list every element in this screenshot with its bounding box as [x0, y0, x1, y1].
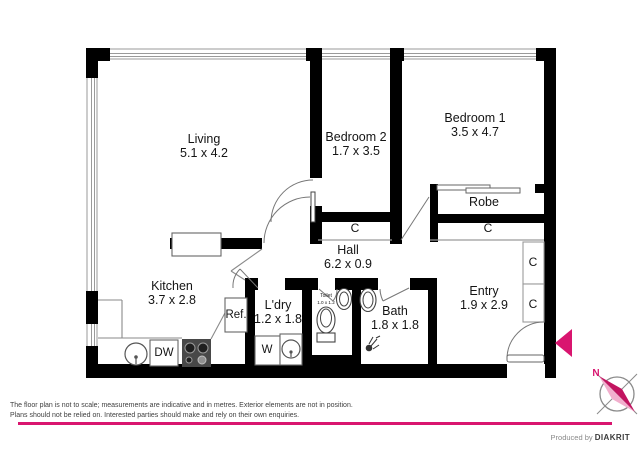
bath-door: [380, 288, 409, 301]
brand-name: DIAKRIT: [595, 433, 630, 442]
toilet-label: Toilet 1.0 x 1.2: [317, 294, 335, 305]
hall-label: Hall 6.2 x 0.9: [324, 244, 372, 271]
window-left-kitchen: [86, 324, 98, 346]
entry-arrow-icon: [555, 329, 572, 357]
entry-label: Entry 1.9 x 2.9: [460, 285, 508, 312]
produced-by-text: Produced by: [551, 433, 593, 442]
bedroom2-label: Bedroom 2 1.7 x 3.5: [325, 131, 386, 158]
room-name: Toilet: [317, 294, 335, 300]
kitchen-sink-icon: [125, 343, 147, 365]
room-dims: 1.2 x 1.8: [254, 313, 302, 327]
footer-divider: [18, 422, 612, 425]
dishwasher-label: DW: [154, 347, 173, 359]
producer-credit: Produced by DIAKRIT: [551, 433, 630, 442]
floor-plan-page: Living 5.1 x 4.2 Bedroom 2 1.7 x 3.5 Bed…: [0, 0, 639, 452]
laundry-label: L'dry 1.2 x 1.8: [254, 299, 302, 326]
washer-label: W: [262, 344, 273, 356]
room-name: Robe: [469, 196, 499, 210]
window-top-living: [110, 48, 306, 60]
window-top-bedroom1: [404, 48, 536, 60]
robe-sliding-door: [437, 185, 520, 193]
room-name: Hall: [324, 244, 372, 258]
robe-label: Robe: [469, 196, 499, 210]
room-name: Bath: [371, 305, 419, 319]
room-name: L'dry: [254, 299, 302, 313]
cooktop-icon: [182, 339, 211, 367]
room-dims: 1.8 x 1.8: [371, 319, 419, 333]
entry-closet-bottom-label: C: [529, 298, 538, 310]
bedroom1-door-leaf: [401, 197, 429, 240]
room-dims: 3.7 x 2.8: [148, 294, 196, 308]
window-left-living: [86, 75, 98, 291]
toilet-basin-icon: [337, 289, 352, 310]
toilet-icon: [317, 307, 335, 342]
kitchen-island-bench: [172, 233, 221, 256]
room-name: Bedroom 1: [444, 112, 505, 126]
room-dims: 1.7 x 3.5: [325, 145, 386, 159]
hall-closet-label: C: [351, 222, 360, 234]
room-dims: 3.5 x 4.7: [444, 126, 505, 140]
room-dims: 6.2 x 0.9: [324, 258, 372, 272]
room-name: Bedroom 2: [325, 131, 386, 145]
shower-icon: [366, 336, 380, 351]
compass-north-label: N: [592, 369, 599, 379]
bath-label: Bath 1.8 x 1.8: [371, 305, 419, 332]
entry-door: [507, 322, 545, 378]
room-name: Living: [180, 133, 228, 147]
room-dims: 5.1 x 4.2: [180, 147, 228, 161]
room-dims: 1.9 x 2.9: [460, 299, 508, 313]
living-label: Living 5.1 x 4.2: [180, 133, 228, 160]
fridge-label: Ref.: [225, 309, 246, 321]
laundry-tub-icon: [282, 340, 300, 358]
floor-plan-canvas: [0, 0, 639, 452]
bedroom2-door: [271, 180, 315, 222]
bedroom1-label: Bedroom 1 3.5 x 4.7: [444, 112, 505, 139]
room-dims: 1.0 x 1.2: [317, 300, 335, 305]
room-name: Kitchen: [148, 280, 196, 294]
room-name: Entry: [460, 285, 508, 299]
disclaimer-line-1: The floor plan is not to scale; measurem…: [10, 402, 353, 410]
window-top-bedroom2: [322, 48, 390, 60]
disclaimer-line-2: Plans should not be relied on. Intereste…: [10, 412, 299, 420]
robe-closet-label: C: [484, 222, 493, 234]
compass-icon: [597, 374, 637, 414]
entry-closet-top-label: C: [529, 256, 538, 268]
kitchen-label: Kitchen 3.7 x 2.8: [148, 280, 196, 307]
